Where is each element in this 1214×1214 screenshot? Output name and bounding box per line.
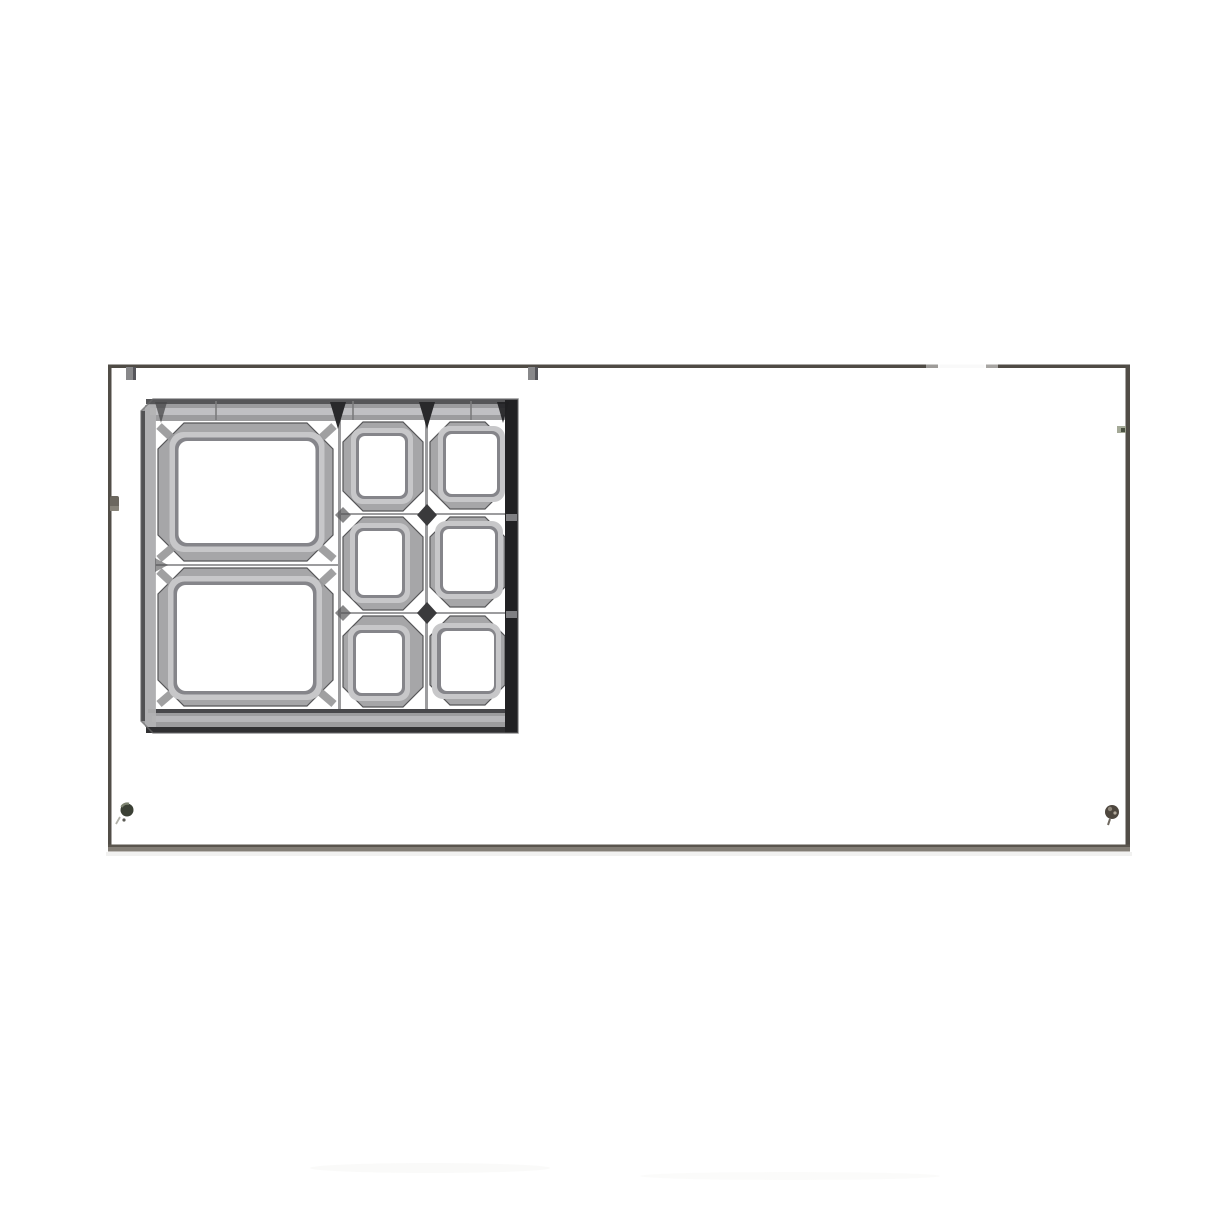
panel-photo [0, 0, 1214, 1214]
speck-core [1121, 428, 1125, 432]
left-rail-face [145, 405, 156, 727]
panel-border-bottom [108, 847, 1130, 852]
opening-r1c1 [351, 428, 413, 504]
screw-head [1105, 805, 1119, 819]
background-smudge [640, 1172, 940, 1180]
top-bar-highlight [150, 408, 512, 415]
right-rail [505, 400, 518, 733]
opening-r2c2 [435, 521, 503, 599]
opening-large-1 [170, 432, 325, 552]
opening [443, 529, 495, 591]
panel-border-bottom-edge [108, 845, 1130, 848]
opening [358, 531, 402, 595]
glare-core [938, 362, 986, 371]
top-bar-seam [352, 401, 354, 420]
opening [359, 436, 405, 496]
screw-speckle [1113, 811, 1116, 814]
opening-r3c2 [432, 623, 501, 699]
clip-shade [535, 367, 538, 380]
opening [177, 585, 313, 691]
panel-border-right [1126, 365, 1131, 852]
opening [179, 441, 316, 543]
right-edge-speck [1117, 426, 1126, 433]
top-edge-clip-mid [528, 367, 538, 380]
top-edge-clip-left [126, 367, 136, 380]
glare-fade [926, 362, 940, 371]
bottom-bar-highlight [152, 716, 512, 722]
opening [446, 434, 497, 494]
opening-r3c1 [348, 625, 410, 701]
glare-fade [984, 362, 998, 371]
top-bar-seam [215, 401, 217, 420]
panel-border-left [108, 365, 112, 852]
clip-shade [133, 367, 136, 380]
tab-highlight [110, 506, 119, 511]
photo-stage [0, 0, 1214, 1214]
opening-r1c2 [438, 426, 505, 502]
opening [356, 633, 402, 693]
left-edge-tab [110, 496, 119, 511]
bottom-bar-shadow [146, 727, 518, 733]
bottom-bar-dark-edge [148, 709, 518, 713]
screw-speckle [1108, 807, 1112, 811]
top-border-glare [926, 362, 998, 371]
casting [141, 399, 518, 733]
right-rail-notch [506, 514, 517, 521]
top-bar-seam [470, 401, 472, 420]
right-rail-notch [506, 611, 517, 618]
screw-chip [122, 818, 125, 821]
opening-r2c1 [350, 523, 410, 603]
background-smudge [310, 1163, 550, 1173]
opening-large-2 [168, 576, 322, 700]
opening [441, 631, 494, 691]
panel-drop-shadow [106, 852, 1132, 856]
